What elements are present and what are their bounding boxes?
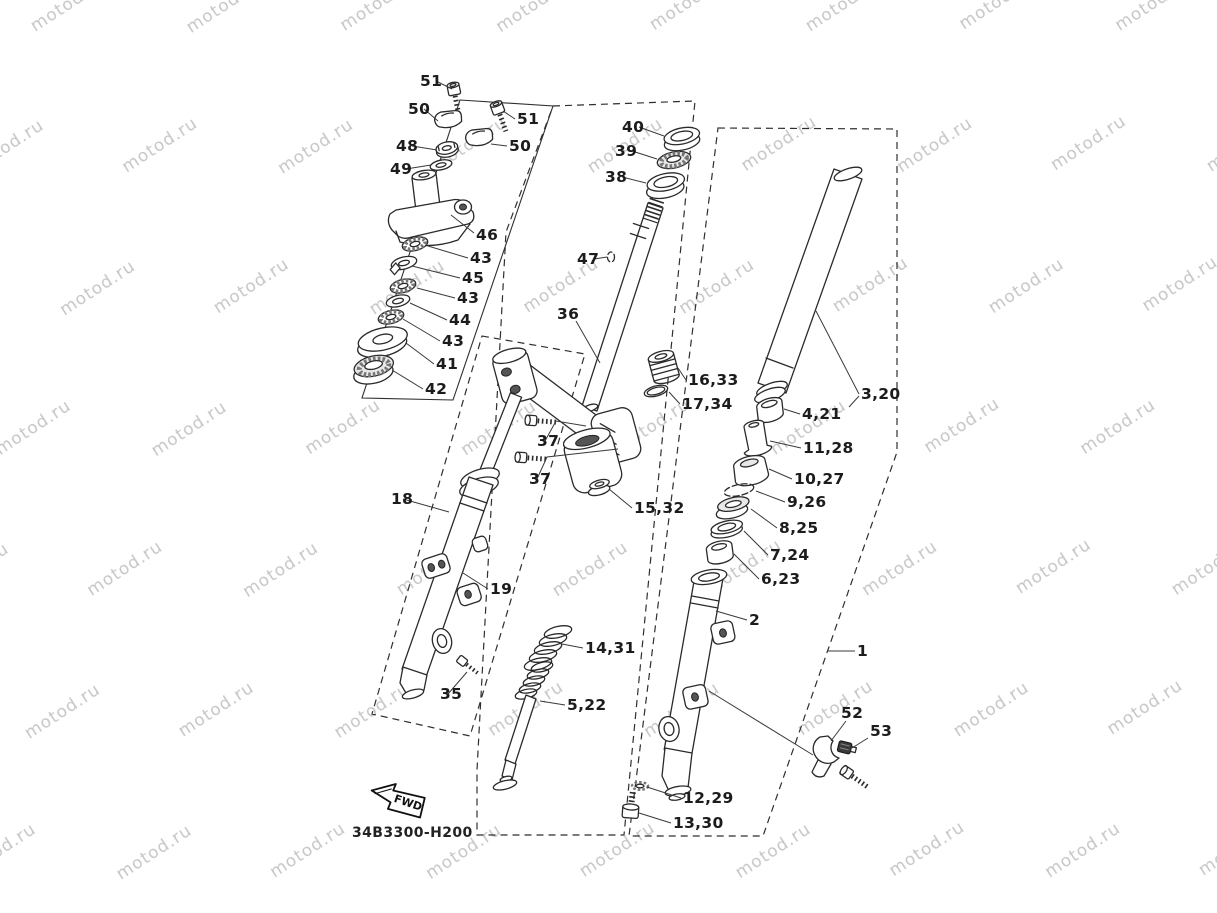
part-label-8-25: 8,25 <box>779 519 818 537</box>
part-label-15-32: 15,32 <box>634 499 685 517</box>
part-label-37-b: 37 <box>529 470 551 488</box>
part-label-2: 2 <box>749 611 760 629</box>
part-label-43-c: 43 <box>442 332 464 350</box>
part-label-48: 48 <box>396 137 418 155</box>
part-label-37-a: 37 <box>537 432 559 450</box>
part-label-6-23: 6,23 <box>761 570 800 588</box>
part-label-38: 38 <box>605 168 627 186</box>
part-label-51-top: 51 <box>420 72 442 90</box>
part-label-7-24: 7,24 <box>770 546 809 564</box>
part-label-10-27: 10,27 <box>794 470 845 488</box>
part-label-17-34: 17,34 <box>682 395 733 413</box>
part-label-12-29: 12,29 <box>683 789 734 807</box>
part-label-51-right: 51 <box>517 110 539 128</box>
part-label-45: 45 <box>462 269 484 287</box>
part-label-50-top: 50 <box>408 100 430 118</box>
part-label-13-30: 13,30 <box>673 814 724 832</box>
part-label-11-28: 11,28 <box>803 439 854 457</box>
parts-diagram-page: motod.ru motod.ru <box>0 0 1217 913</box>
part-label-9-26: 9,26 <box>787 493 826 511</box>
part-label-42: 42 <box>425 380 447 398</box>
part-label-41: 41 <box>436 355 458 373</box>
part-label-36: 36 <box>557 305 579 323</box>
part-label-39: 39 <box>615 142 637 160</box>
part-label-18: 18 <box>391 490 413 508</box>
part-label-3-20: 3,20 <box>861 385 900 403</box>
part-label-49: 49 <box>390 160 412 178</box>
part-label-53: 53 <box>870 722 892 740</box>
part-label-19: 19 <box>490 580 512 598</box>
part-label-46: 46 <box>476 226 498 244</box>
diagram-code: 34B3300-H200 <box>352 825 473 841</box>
part-label-40: 40 <box>622 118 644 136</box>
part-label-35: 35 <box>440 685 462 703</box>
fork-exploded-diagram: motod.ru motod.ru <box>0 0 1217 913</box>
part-label-43-a: 43 <box>470 249 492 267</box>
part-label-16-33: 16,33 <box>688 371 739 389</box>
part-label-52: 52 <box>841 704 863 722</box>
part-label-1: 1 <box>857 642 868 660</box>
part-label-44: 44 <box>449 311 471 329</box>
part-label-14-31: 14,31 <box>585 639 636 657</box>
part-label-47: 47 <box>577 250 599 268</box>
part-label-43-b: 43 <box>457 289 479 307</box>
part-label-4-21: 4,21 <box>802 405 841 423</box>
part-label-5-22: 5,22 <box>567 696 606 714</box>
part-label-50-right: 50 <box>509 137 531 155</box>
